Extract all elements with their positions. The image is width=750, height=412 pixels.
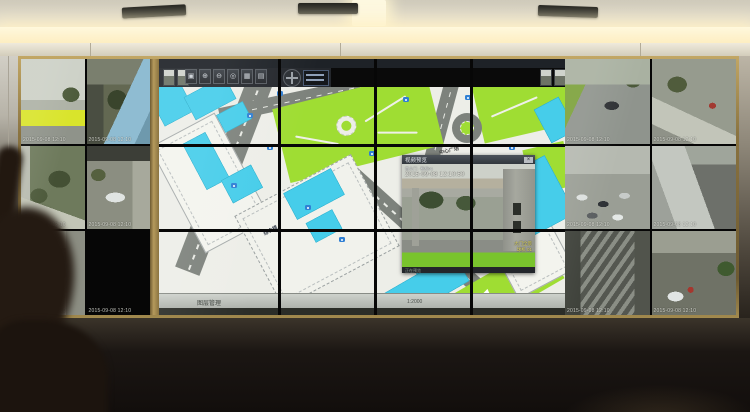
panel-bezel bbox=[278, 59, 281, 315]
camera-thumbnail-strip-right bbox=[540, 69, 566, 86]
map-tool-zoom-in-button[interactable]: ⊕ bbox=[199, 69, 211, 84]
camera-osd: 2015-09-08 12:10 bbox=[89, 137, 132, 143]
camera-tile[interactable]: 2015-09-08 12:10 bbox=[652, 146, 737, 229]
map-tool-layers-button[interactable]: ▤ bbox=[255, 69, 267, 84]
map-tool-zoom-out-button[interactable]: ⊖ bbox=[213, 69, 225, 84]
video-wall-frame: 2015-09-08 12:10 2015-09-08 12:10 2015-0… bbox=[18, 56, 739, 318]
map-roundabout bbox=[452, 113, 482, 143]
map-fountain bbox=[334, 114, 358, 138]
room-wall-lower bbox=[0, 318, 750, 412]
camera-osd: 2015-09-08 12:10 bbox=[23, 137, 66, 143]
control-room-photo: 2015-09-08 12:10 2015-09-08 12:10 2015-0… bbox=[0, 0, 750, 412]
camera-osd: 2015-09-08 12:10 bbox=[654, 308, 697, 314]
video-popup-titlebar[interactable]: 视频预览 × bbox=[402, 155, 535, 164]
close-icon[interactable]: × bbox=[524, 157, 533, 164]
camera-tile[interactable]: 2015-09-08 12:10 bbox=[565, 231, 650, 315]
room-wall-right bbox=[739, 56, 750, 326]
ceiling-fascia bbox=[0, 43, 750, 56]
map-camera-marker[interactable] bbox=[403, 97, 409, 102]
gate-pillar bbox=[412, 188, 419, 246]
camera-osd: 2015-09-08 12:10 bbox=[567, 308, 610, 314]
camera-osd: 2015-09-08 12:10 bbox=[654, 137, 697, 143]
cove-light bbox=[0, 27, 750, 43]
panel-bezel bbox=[470, 59, 473, 315]
map-tool-select-button[interactable]: ▣ bbox=[185, 69, 197, 84]
camera-tile[interactable]: 2015-09-08 12:10 bbox=[565, 59, 650, 144]
map-camera-marker[interactable] bbox=[305, 205, 311, 210]
camera-tile[interactable]: 2015-09-08 12:10 bbox=[87, 59, 151, 144]
wall-mullion bbox=[150, 59, 159, 315]
map-status-left: 图层管理 bbox=[197, 298, 221, 307]
video-popup-feed: 南大门 · 枪机01 2015-09-08 12:10:50 大门全景 球机 0… bbox=[402, 164, 535, 267]
video-popup-statusbar: 正在预览 bbox=[402, 267, 535, 273]
fascia-seam bbox=[640, 43, 641, 56]
map-camera-marker[interactable] bbox=[339, 237, 345, 242]
camera-osd: 2015-09-08 12:10 bbox=[654, 222, 697, 228]
map-status-bar: 图层管理 1:2000 bbox=[159, 293, 565, 308]
map-screen: ▣ ⊕ ⊖ ◎ ▦ ▤ bbox=[159, 59, 565, 315]
video-wall: 2015-09-08 12:10 2015-09-08 12:10 2015-0… bbox=[21, 59, 736, 315]
gate-pillar bbox=[503, 169, 535, 251]
map-pan-dpad[interactable] bbox=[283, 69, 301, 87]
video-popup-status-text: 正在预览 bbox=[405, 268, 421, 274]
panel-bezel bbox=[374, 59, 377, 315]
camera-osd: 2015-09-08 12:10 bbox=[567, 222, 610, 228]
gis-map-canvas[interactable]: 培训中心大楼 中心广场 综合楼 bbox=[159, 87, 565, 293]
camera-osd: 2015-09-08 12:10 bbox=[89, 222, 132, 228]
camera-osd: 2015-09-08 12:10 bbox=[89, 308, 132, 314]
ceiling-vent bbox=[298, 3, 358, 14]
panel-bezel bbox=[159, 229, 565, 232]
map-camera-marker[interactable] bbox=[231, 183, 237, 188]
panel-bezel bbox=[159, 144, 565, 147]
map-coordinate-box bbox=[303, 70, 329, 86]
map-scale-text: 1:2000 bbox=[407, 299, 422, 305]
camera-osd: 2015-09-08 12:10 bbox=[567, 137, 610, 143]
camera-tile[interactable]: 2015-09-08 12:10 bbox=[21, 59, 85, 144]
video-timestamp: 2015-09-08 12:10:50 bbox=[405, 172, 465, 178]
video-popup-title: 视频预览 bbox=[405, 156, 427, 164]
cctv-zone-right: 2015-09-08 12:10 2015-09-08 12:10 2015-0… bbox=[565, 59, 736, 315]
camera-thumbnail[interactable] bbox=[163, 69, 175, 86]
fascia-seam bbox=[90, 43, 91, 56]
map-toolbar: ▣ ⊕ ⊖ ◎ ▦ ▤ bbox=[185, 69, 267, 84]
fascia-seam bbox=[340, 43, 341, 56]
ceiling bbox=[0, 0, 750, 58]
map-tool-grid-button[interactable]: ▦ bbox=[241, 69, 253, 84]
camera-tile[interactable]: 2015-09-08 12:10 bbox=[87, 146, 151, 229]
camera-tile[interactable]: 2015-09-08 12:10 bbox=[652, 231, 737, 315]
map-tool-locate-button[interactable]: ◎ bbox=[227, 69, 239, 84]
map-camera-marker[interactable] bbox=[247, 113, 253, 118]
ceiling-vent bbox=[538, 5, 598, 18]
camera-thumbnail[interactable] bbox=[540, 69, 552, 86]
map-app-header bbox=[159, 59, 565, 68]
video-osd: 大门全景 球机 01 bbox=[514, 241, 532, 253]
camera-tile[interactable]: 2015-09-08 12:10 bbox=[87, 231, 151, 315]
camera-tile[interactable]: 2015-09-08 12:10 bbox=[652, 59, 737, 144]
camera-tile[interactable]: 2015-09-08 12:10 bbox=[565, 146, 650, 229]
ceiling-vent bbox=[122, 4, 186, 18]
video-popup: 视频预览 × 南大门 · 枪机01 2015-09-08 12:10:50 大门… bbox=[402, 155, 535, 273]
map-bottom-strip bbox=[159, 308, 565, 315]
